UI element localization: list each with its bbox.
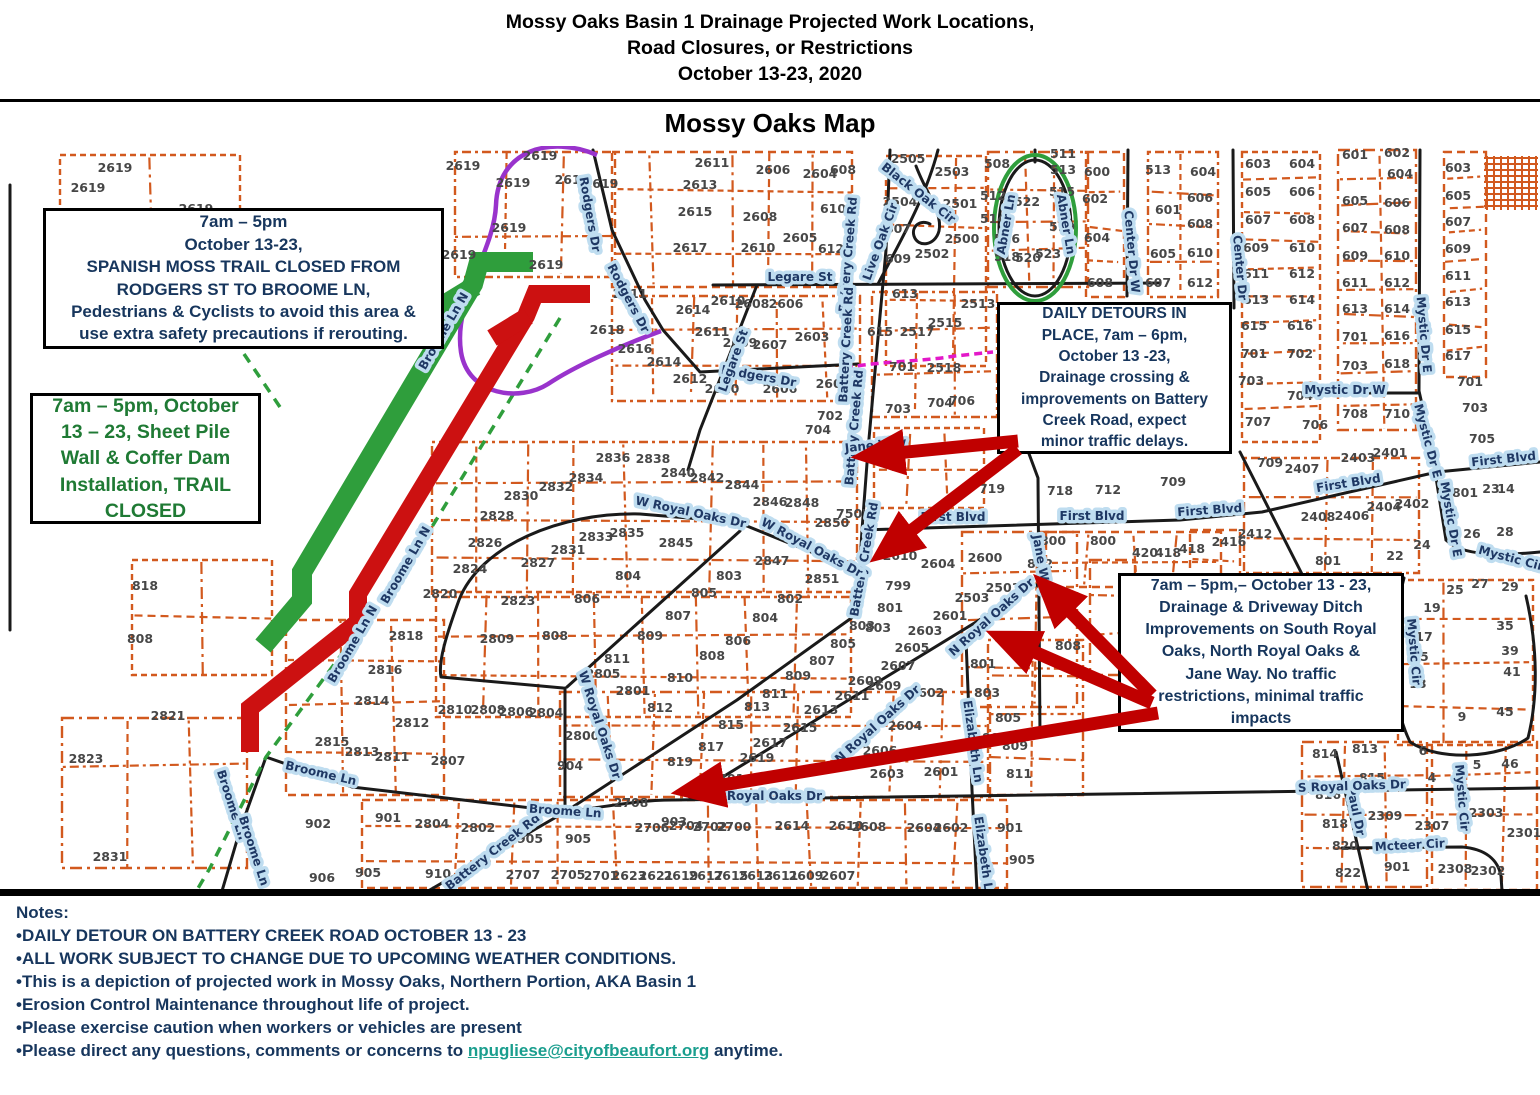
note-item: •This is a depiction of projected work i…: [16, 970, 1540, 993]
parcel-number: 2827: [521, 555, 556, 570]
parcel-number: 2834: [569, 470, 604, 485]
parcel-number: 905: [565, 831, 591, 846]
parcel-number: 701: [889, 359, 915, 374]
parcel-number: 608: [1187, 216, 1213, 231]
parcel-number: 601: [1155, 202, 1181, 217]
parcel-number: 2614: [676, 302, 711, 317]
parcel-number: 4: [1428, 770, 1437, 785]
note-item: •Please direct any questions, comments o…: [16, 1039, 1540, 1062]
parcel-number: 2500: [945, 231, 980, 246]
parcel-number: 2820: [423, 586, 458, 601]
parcel-number: 2603: [795, 329, 830, 344]
parcel-number: 805: [691, 585, 717, 600]
parcel-number: 508: [984, 156, 1010, 171]
parcel-number: 2809: [480, 631, 515, 646]
street-label: First Blvd: [921, 510, 986, 524]
parcel-number: 609: [1342, 248, 1368, 263]
parcel-number: 2617: [753, 735, 788, 750]
parcel-number: 612: [1384, 275, 1410, 290]
parcel-number: 707: [1245, 414, 1271, 429]
parcel-number: 813: [744, 699, 770, 714]
parcel-number: 2851: [805, 571, 840, 586]
parcel-number: 799: [885, 578, 911, 593]
parcel-number: 2618: [590, 322, 625, 337]
parcel-number: 704: [805, 422, 831, 437]
parcel-number: 2802: [461, 820, 496, 835]
parcel-number: 2307: [1415, 818, 1450, 833]
parcel-number: 2619: [442, 247, 477, 262]
parcel-number: 2846: [753, 494, 788, 509]
parcel-number: 5: [1473, 757, 1482, 772]
parcel-number: 604: [1289, 156, 1315, 171]
parcel-number: 41: [1503, 664, 1520, 679]
street-label: Mystic Cir: [1477, 543, 1540, 574]
parcel-number: 513: [1145, 162, 1171, 177]
parcel-number: 616: [1384, 328, 1410, 343]
street-label: Legare St: [767, 270, 832, 284]
parcel-number: 602: [1082, 191, 1108, 206]
parcel-number: 2844: [725, 477, 760, 492]
notes-section: Notes: •DAILY DETOUR ON BATTERY CREEK RO…: [0, 889, 1540, 1095]
parcel-number: 703: [1238, 373, 1264, 388]
parcel-number: 811: [1006, 766, 1032, 781]
parcel-number: 606: [1187, 190, 1213, 205]
parcel-number: 814: [1312, 746, 1338, 761]
street-label: Broome Ln: [529, 801, 602, 820]
parcel-number: 807: [665, 608, 691, 623]
parcel-number: 2613: [683, 177, 718, 192]
parcel-number: 2602: [934, 820, 969, 835]
note-item: •Erosion Control Maintenance throughout …: [16, 993, 1540, 1016]
parcel-number: 2700: [717, 819, 752, 834]
street-label: S Royal Oaks Dr: [1298, 777, 1406, 795]
parcel-number: 703: [1462, 400, 1488, 415]
parcel-number: 719: [979, 481, 1005, 496]
parcel-number: 2810: [438, 702, 473, 717]
parcel-number: 615: [867, 324, 893, 339]
parcel-number: 2619: [523, 148, 558, 163]
street-label: Mystic Cir: [1404, 618, 1424, 686]
parcel-number: 6: [1419, 743, 1428, 758]
parcel-number: 2408: [1301, 509, 1336, 524]
parcel-number: 29: [1501, 579, 1518, 594]
parcel-number: 2612: [673, 371, 708, 386]
callout-sheet-pile-wall: 7am – 5pm, October 13 – 23, Sheet Pile W…: [30, 393, 261, 524]
parcel-number: 2835: [610, 525, 645, 540]
parcel-number: 2613: [804, 702, 839, 717]
parcel-number: 613: [892, 286, 918, 301]
parcel-number: 2403: [1341, 450, 1376, 465]
parcel-number: 803: [849, 618, 875, 633]
parcel-number: 815: [718, 717, 744, 732]
parcel-number: 805: [995, 710, 1021, 725]
parcel-number: 702: [817, 408, 843, 423]
callout-daily-detours: DAILY DETOURS IN PLACE, 7am – 6pm, Octob…: [997, 302, 1232, 454]
parcel-number: 511: [1050, 146, 1076, 161]
parcel-number: 2610: [741, 240, 776, 255]
parcel-number: 806: [725, 633, 751, 648]
parcel-number: 705: [1469, 431, 1495, 446]
parcel-number: 2607: [881, 658, 916, 673]
parcel-number: 614: [1384, 301, 1410, 316]
parcel-number: 809: [785, 668, 811, 683]
parcel-number: 612: [1289, 266, 1315, 281]
parcel-number: 701: [1342, 329, 1368, 344]
parcel-number: 905: [1009, 852, 1035, 867]
parcel-number: 418: [1179, 541, 1205, 556]
parcel-number: 810: [667, 670, 693, 685]
parcel-number: 604: [1190, 164, 1216, 179]
notes-heading: Notes:: [16, 901, 1540, 924]
street-label: W Royal Oaks Dr: [634, 494, 747, 531]
parcel-number: 2505: [891, 151, 926, 166]
parcel-number: 22: [1386, 548, 1403, 563]
title-line-3: October 13-23, 2020: [0, 61, 1540, 87]
parcel-number: 611: [1445, 268, 1471, 283]
parcel-number: 808: [1055, 638, 1081, 653]
parcel-number: 2603: [870, 766, 905, 781]
parcel-number: 2406: [1335, 508, 1370, 523]
parcel-number: 2605: [783, 230, 818, 245]
parcel-number: 2608: [743, 209, 778, 224]
parcel-number: 2606: [756, 162, 791, 177]
parcel-number: 2807: [431, 753, 466, 768]
callout-royal-oaks-ditch: 7am – 5pm,– October 13 - 23, Drainage & …: [1118, 573, 1404, 732]
parcel-number: 710: [1384, 406, 1410, 421]
street-label: Broome Ln: [236, 814, 272, 887]
parcel-number: 610: [1187, 245, 1213, 260]
parcel-number: 2601: [933, 608, 968, 623]
parcel-number: 607: [1145, 275, 1171, 290]
parcel-number: 2518: [927, 360, 962, 375]
parcel-number: 2619: [492, 220, 527, 235]
parcel-number: 618: [1384, 356, 1410, 371]
notes-list: •DAILY DETOUR ON BATTERY CREEK ROAD OCTO…: [16, 924, 1540, 1062]
parcel-number: 703: [885, 401, 911, 416]
parcel-number: 807: [809, 653, 835, 668]
street-label: Live Oak Cir: [860, 201, 901, 282]
parcel-number: 901: [375, 810, 401, 825]
parcel-number: 808: [542, 628, 568, 643]
parcel-number: 2804: [415, 816, 450, 831]
parcel-number: 2832: [539, 479, 574, 494]
parcel-number: 701: [1241, 346, 1267, 361]
parcel-number: 708: [1342, 406, 1368, 421]
street-label: Mystic Dr E: [1414, 296, 1435, 373]
parcel-number: 2309: [1368, 808, 1403, 823]
parcel-number: 808: [699, 648, 725, 663]
parcel-number: 905: [355, 865, 381, 880]
parcel-number: 2606: [769, 296, 804, 311]
parcel-number: 14: [1497, 481, 1515, 496]
parcel-number: 607: [1342, 220, 1368, 235]
parcel-number: 702: [1287, 346, 1313, 361]
parcel-number: 2600: [968, 550, 1003, 565]
parcel-number: 607: [1445, 214, 1471, 229]
parcel-number: 2608: [852, 819, 887, 834]
street-label: Mcteer Cir: [1374, 836, 1445, 854]
parcel-number: 703: [1342, 358, 1368, 373]
parcel-number: 2821: [151, 708, 186, 723]
parcel-number: 39: [1501, 643, 1518, 658]
parcel-number: 904: [557, 758, 583, 773]
parcel-number: 2608: [735, 296, 770, 311]
parcel-number: 608: [830, 162, 856, 177]
divider-line: [0, 99, 1540, 102]
parcel-number: 601: [1342, 147, 1368, 162]
parcel-number: 2706: [635, 820, 670, 835]
parcel-number: 2402: [1395, 496, 1430, 511]
parcel-number: 603: [1245, 156, 1271, 171]
parcel-number: 811: [604, 651, 630, 666]
road: [1233, 150, 1234, 308]
parcel-number: 2818: [389, 628, 424, 643]
parcel-number: 2619: [496, 175, 531, 190]
parcel-number: 2619: [98, 160, 133, 175]
parcel-number: 2407: [1285, 461, 1320, 476]
parcel-number: 606: [1384, 195, 1410, 210]
parcel-number: 2302: [1471, 863, 1506, 878]
parcel-number: 2701: [710, 771, 745, 786]
parcel-number: 2619: [446, 158, 481, 173]
parcel-number: 2609: [789, 868, 824, 883]
parcel-number: 2416: [1212, 534, 1247, 549]
parcel-number: 614: [1289, 292, 1315, 307]
parcel-number: 902: [305, 816, 331, 831]
callout-spanish-moss-trail-closed: 7am – 5pm October 13-23, SPANISH MOSS TR…: [43, 208, 444, 349]
parcel-number: 901: [997, 820, 1023, 835]
parcel-number: 2831: [551, 542, 586, 557]
parcel-number: 2708: [614, 795, 649, 810]
parcel-number: 2607: [821, 868, 856, 883]
title-line-1: Mossy Oaks Basin 1 Drainage Projected Wo…: [0, 0, 1540, 35]
parcel-number: 605: [1445, 188, 1471, 203]
parcel-number: 2824: [453, 561, 488, 576]
parcel-number: 35: [1496, 618, 1513, 633]
parcel-number: 2502: [915, 246, 950, 261]
parcel-number: 609: [1445, 241, 1471, 256]
street-label: S Royal Oaks Dr: [714, 789, 822, 803]
parcel-number: 2614: [647, 354, 682, 369]
parcel-number: 818: [1322, 816, 1348, 831]
email-link[interactable]: npugliese@cityofbeaufort.org: [468, 1041, 709, 1060]
parcel-number: 9: [1458, 709, 1467, 724]
parcel-number: 2848: [785, 495, 820, 510]
parcel-number: 2823: [69, 751, 104, 766]
parcel-number: 605: [1342, 193, 1368, 208]
parcel-number: 718: [1047, 483, 1073, 498]
parcel-number: 609: [885, 251, 911, 266]
parcel-number: 709: [1257, 455, 1283, 470]
parcel-number: 906: [309, 870, 335, 885]
parcel-number: 2619: [529, 257, 564, 272]
parcel-number: 2604: [888, 718, 923, 733]
parcel-number: 819: [667, 754, 693, 769]
parcel-number: 600: [1084, 164, 1110, 179]
parcel-number: 2611: [835, 688, 870, 703]
parcel-number: 612: [1187, 275, 1213, 290]
parcel-number: 605: [1245, 184, 1271, 199]
parcel-number: 2308: [1438, 861, 1473, 876]
parcel-number: 2836: [596, 450, 631, 465]
parcel-number: 603: [1445, 160, 1471, 175]
parcel-number: 610: [1384, 248, 1410, 263]
map-title: Mossy Oaks Map: [0, 102, 1540, 146]
parcel-number: 604: [1387, 166, 1413, 181]
parcel-number: 709: [1160, 474, 1186, 489]
parcel-number: 26: [1463, 526, 1481, 541]
parcel-number: 615: [1241, 318, 1267, 333]
parcel-number: 2603: [908, 623, 943, 638]
parcel-number: 2619: [740, 750, 775, 765]
parcel-number: 607: [1245, 212, 1271, 227]
parcel-number: 615: [1445, 322, 1471, 337]
parcel-number: 806: [574, 591, 600, 606]
parcel-number: 418: [1155, 545, 1181, 560]
parcel-number: 804: [615, 568, 641, 583]
parcel-number: 822: [1335, 865, 1361, 880]
parcel-number: 2838: [636, 451, 671, 466]
parcel-number: 46: [1501, 756, 1519, 771]
street-label: Broome Ln: [284, 758, 358, 788]
parcel-number: 801: [877, 600, 903, 615]
road: [567, 531, 740, 687]
parcel-number: 2401: [1373, 445, 1408, 460]
parcel-number: 805: [830, 636, 856, 651]
note-item: •Please exercise caution when workers or…: [16, 1016, 1540, 1039]
parcel-number: 2831: [93, 849, 128, 864]
parcel-number: 2606: [863, 743, 898, 758]
parcel-number: 801: [1315, 553, 1341, 568]
parcel-number: 19: [1423, 600, 1440, 615]
parcel-number: 2301: [1507, 825, 1540, 840]
parcel-number: 2823: [501, 593, 536, 608]
parcel-number: 806: [982, 730, 1008, 745]
parcel-number: 2614: [775, 818, 810, 833]
parcel-number: 27: [1471, 576, 1488, 591]
parcel-number: 901: [1384, 859, 1410, 874]
parcel-number: 812: [647, 700, 673, 715]
parcel-number: 808: [127, 631, 153, 646]
parcel-number: 801: [970, 656, 996, 671]
parcel-number: 2611: [695, 155, 730, 170]
parcel-number: 2503: [935, 164, 970, 179]
parcel-number: 2604: [921, 556, 956, 571]
parcel-number: 609: [1243, 240, 1269, 255]
parcel-number: 2811: [375, 749, 410, 764]
parcel-number: 2830: [504, 488, 539, 503]
parcel-number: 613: [1342, 301, 1368, 316]
parcel-number: 2707: [506, 867, 541, 882]
street-label: First Blvd: [1177, 501, 1243, 519]
parcel-number: 2303: [1469, 805, 1504, 820]
parcel-number: 2615: [783, 720, 818, 735]
parcel-number: 605: [1150, 246, 1176, 261]
parcel-number: 2826: [468, 535, 503, 550]
parcel-number: 804: [752, 610, 778, 625]
parcel-number: 706: [949, 393, 975, 408]
parcel-number: 712: [1095, 482, 1121, 497]
parcel-number: 701: [1457, 374, 1483, 389]
parcel-number: 606: [1289, 184, 1315, 199]
parcel-number: 613: [1445, 294, 1471, 309]
parcel-number: 2847: [755, 553, 790, 568]
parcel-number: 523: [1035, 246, 1061, 261]
parcel-number: 616: [1287, 318, 1313, 333]
parcel-number: 2816: [368, 662, 403, 677]
parcel-number: 2828: [480, 508, 515, 523]
parcel-number: 2814: [355, 693, 390, 708]
parcel-number: 608: [1289, 212, 1315, 227]
parcel-number: 2513: [961, 296, 996, 311]
parcel-number: 45: [1496, 704, 1513, 719]
parcel-number: 2812: [395, 715, 430, 730]
parcel-number: 2515: [928, 315, 963, 330]
parcel-number: 803: [974, 685, 1000, 700]
parcel-number: 604: [1084, 230, 1110, 245]
parcel-number: 2801: [616, 683, 651, 698]
parcel-number: 2617: [673, 240, 708, 255]
parcel-number: 802: [777, 591, 803, 606]
parcel-number: 820: [1332, 838, 1358, 853]
parcel-number: 28: [1496, 524, 1513, 539]
parcel-number: 25: [1446, 582, 1463, 597]
street-label: Mystic Dr E: [1411, 402, 1444, 479]
parcel-number: 706: [1302, 417, 1328, 432]
street-label: First Blvd: [1060, 509, 1125, 523]
title-line-2: Road Closures, or Restrictions: [0, 35, 1540, 61]
parcel-number: 800: [1090, 533, 1116, 548]
parcel-number: 611: [1342, 275, 1368, 290]
parcel-number: 818: [132, 578, 158, 593]
parcel-number: 817: [698, 739, 724, 754]
parcel-number: 608: [1384, 222, 1410, 237]
parcel-number: 813: [1352, 741, 1378, 756]
parcel-number: 617: [1445, 348, 1471, 363]
parcel-number: 2605: [895, 640, 930, 655]
parcel-number: 2845: [659, 535, 694, 550]
parcel-number: 2705: [551, 867, 586, 882]
parcel-number: 2842: [690, 470, 725, 485]
note-item: •ALL WORK SUBJECT TO CHANGE DUE TO UPCOM…: [16, 947, 1540, 970]
parcel-number: 608: [1087, 275, 1113, 290]
parcel-number: 2610: [883, 548, 918, 563]
parcel-number: 2850: [815, 515, 850, 530]
parcel-number: 602: [1384, 145, 1410, 160]
parcel-number: 513: [1050, 162, 1076, 177]
parcel-number: 2601: [924, 764, 959, 779]
parcel-number: 2615: [678, 204, 713, 219]
parcel-number: 2804: [529, 705, 564, 720]
parcel-number: 809: [637, 628, 663, 643]
parcel-number: 2619: [71, 180, 106, 195]
page: Mossy Oaks Basin 1 Drainage Projected Wo…: [0, 0, 1540, 1095]
street-label: Mystic Dr W: [1304, 383, 1385, 397]
parcel-number: 2607: [753, 337, 788, 352]
parcel-number: 801: [1452, 485, 1478, 500]
parcel-number: 2503: [955, 590, 990, 605]
page-title: Mossy Oaks Basin 1 Drainage Projected Wo…: [0, 0, 1540, 99]
parcel-number: 2609: [848, 673, 883, 688]
parcel-number: 610: [820, 201, 846, 216]
parcel-number: 803: [716, 568, 742, 583]
note-item: •DAILY DETOUR ON BATTERY CREEK ROAD OCTO…: [16, 924, 1540, 947]
parcel-number: 610: [1289, 240, 1315, 255]
parcel-number: 24: [1413, 537, 1431, 552]
